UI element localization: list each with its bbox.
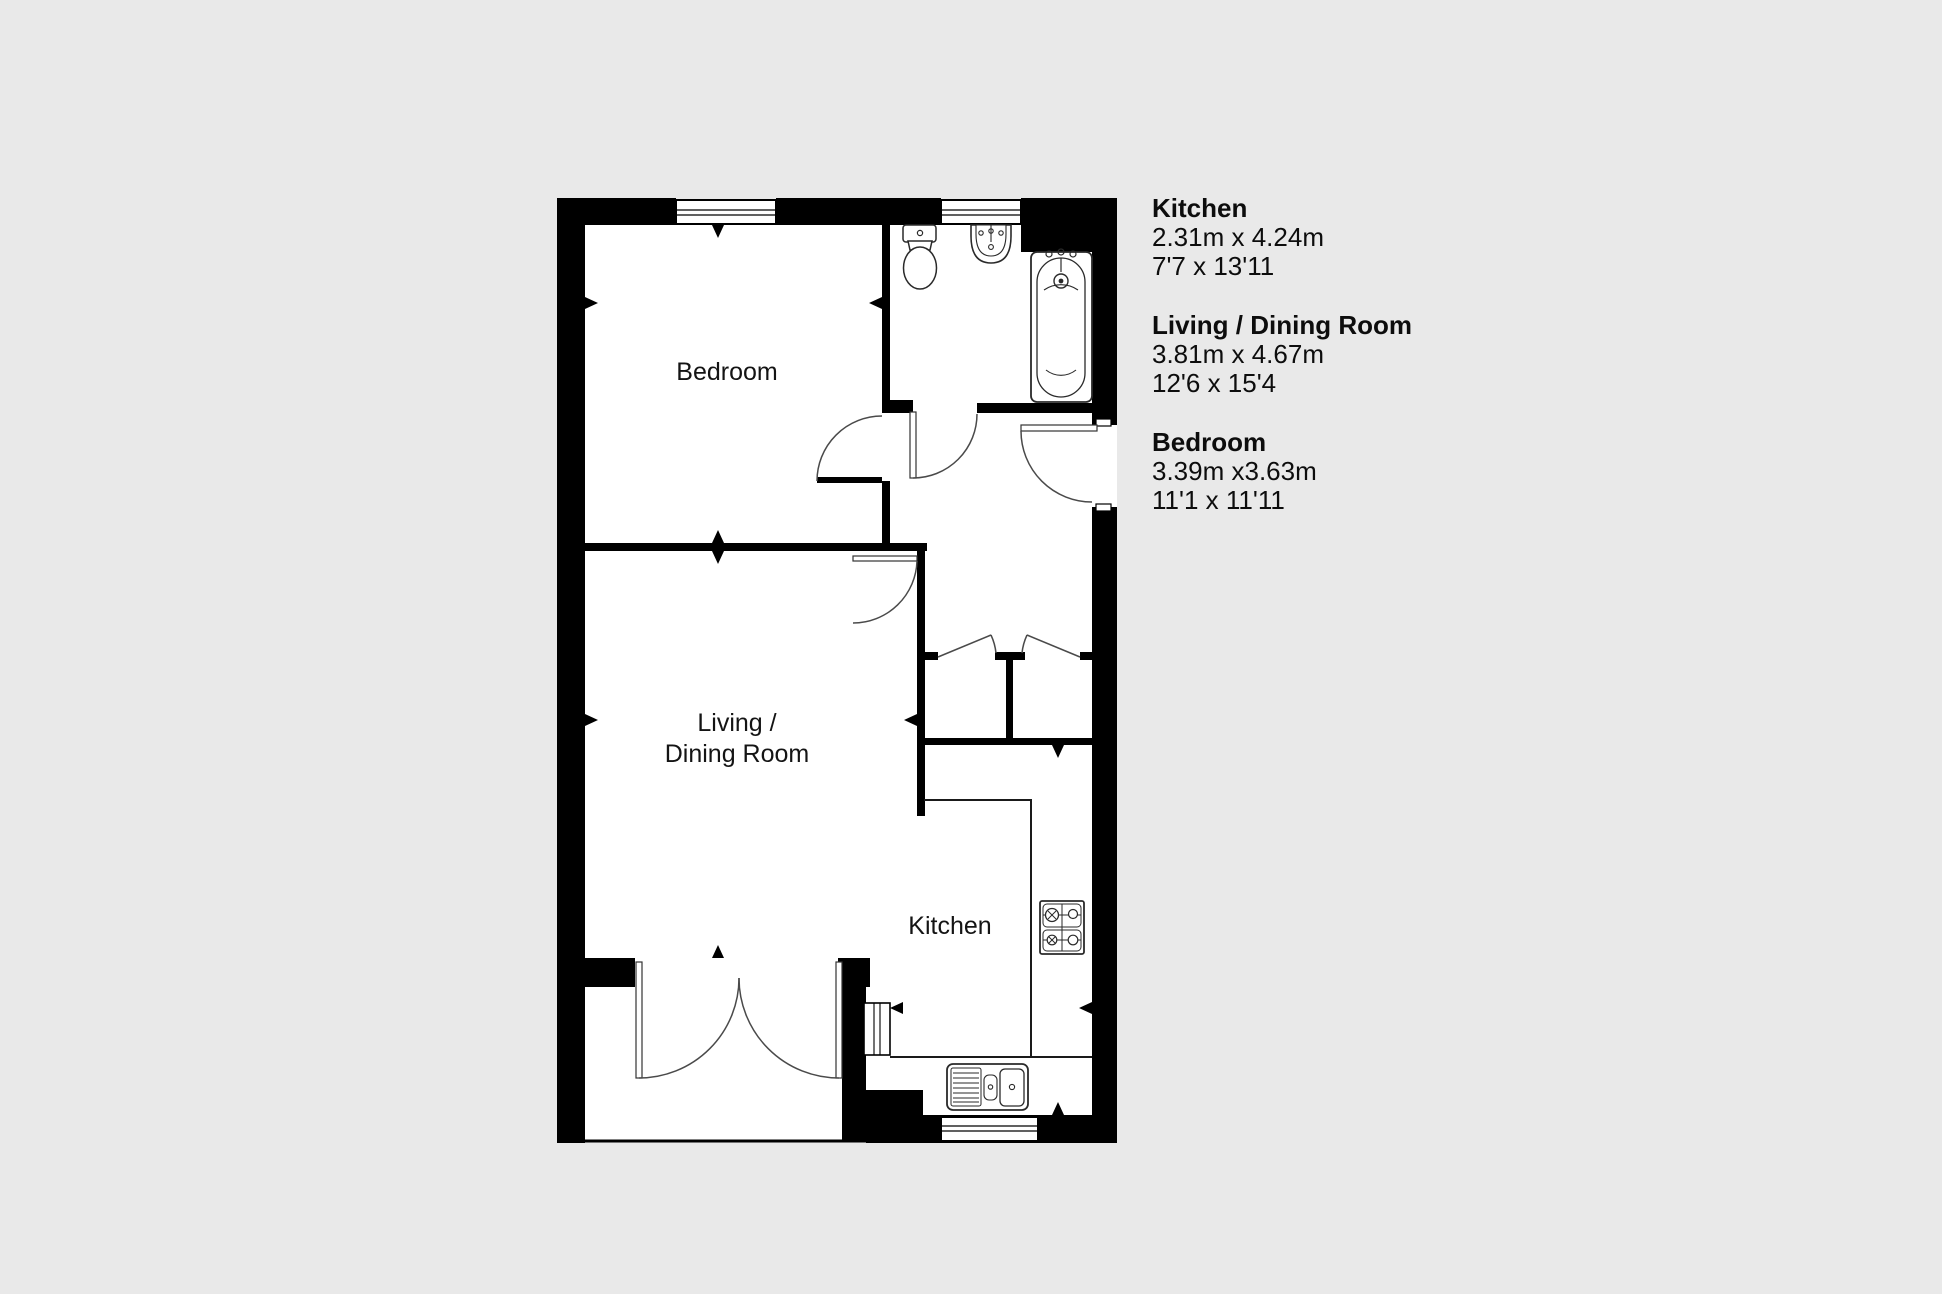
wall-closet-stub-right <box>1080 652 1092 660</box>
wall-closet-stub-left <box>923 652 938 660</box>
room-dimensions-panel: Kitchen 2.31m x 4.24m 7'7 x 13'11 Living… <box>1152 194 1572 545</box>
legend-room-metric: 2.31m x 4.24m <box>1152 223 1572 252</box>
legend-kitchen: Kitchen 2.31m x 4.24m 7'7 x 13'11 <box>1152 194 1572 281</box>
wall-living-bottom-left <box>585 958 635 987</box>
entrance-door-jambs <box>1092 419 1117 511</box>
kitchen-sink <box>947 1064 1028 1110</box>
wall-bedroom-bathroom <box>882 225 890 412</box>
floor-plan: Bedroom Living / Dining Room Kitchen <box>0 0 1942 1294</box>
legend-room-imperial: 12'6 x 15'4 <box>1152 369 1572 398</box>
wall-bedroom-living-divider <box>585 543 927 551</box>
wall-closet-bottom <box>917 738 1092 745</box>
floorplan-page: Bedroom Living / Dining Room Kitchen Kit… <box>0 0 1942 1294</box>
kitchen-label: Kitchen <box>908 912 991 940</box>
wall-bathroom-bottom <box>977 403 1092 413</box>
wall-below-bedroom-door <box>882 481 890 551</box>
wall-patio-kitchen <box>842 987 866 1140</box>
bedroom-window <box>676 200 776 224</box>
bathroom-window <box>941 200 1021 224</box>
basin <box>971 225 1011 263</box>
legend-room-metric: 3.81m x 4.67m <box>1152 340 1572 369</box>
legend-room-imperial: 7'7 x 13'11 <box>1152 252 1572 281</box>
legend-room-imperial: 11'1 x 11'11 <box>1152 486 1572 515</box>
wall-kitchen-corner-step <box>866 1090 923 1115</box>
bathtub <box>1031 249 1092 402</box>
wall-living-bottom-right <box>838 958 870 987</box>
legend-room-name: Kitchen <box>1152 194 1572 223</box>
wall-left <box>557 198 585 1143</box>
hob <box>1040 901 1084 954</box>
living-room-label-line1: Living / <box>697 709 776 737</box>
legend-living-dining: Living / Dining Room 3.81m x 4.67m 12'6 … <box>1152 311 1572 398</box>
wall-right-upper <box>1092 252 1117 425</box>
legend-room-metric: 3.39m x3.63m <box>1152 457 1572 486</box>
wall-bedroom-nook <box>817 477 882 483</box>
legend-bedroom: Bedroom 3.39m x3.63m 11'1 x 11'11 <box>1152 428 1572 515</box>
wall-closet-divider <box>1006 660 1013 738</box>
wall-right-lower <box>1092 507 1117 1115</box>
legend-room-name: Bedroom <box>1152 428 1572 457</box>
wall-top-right-block <box>1021 198 1117 252</box>
patio-side-window <box>864 1003 890 1055</box>
wall-closet-stub-middle <box>995 652 1025 660</box>
bedroom-label: Bedroom <box>676 358 777 386</box>
kitchen-window <box>941 1117 1038 1141</box>
wall-top-left <box>557 198 676 225</box>
legend-room-name: Living / Dining Room <box>1152 311 1572 340</box>
wall-hall-left <box>917 551 925 816</box>
living-room-label-line2: Dining Room <box>665 740 810 768</box>
toilet <box>903 225 937 289</box>
wall-bathroom-stub <box>882 400 913 413</box>
wall-top-middle <box>776 198 941 225</box>
